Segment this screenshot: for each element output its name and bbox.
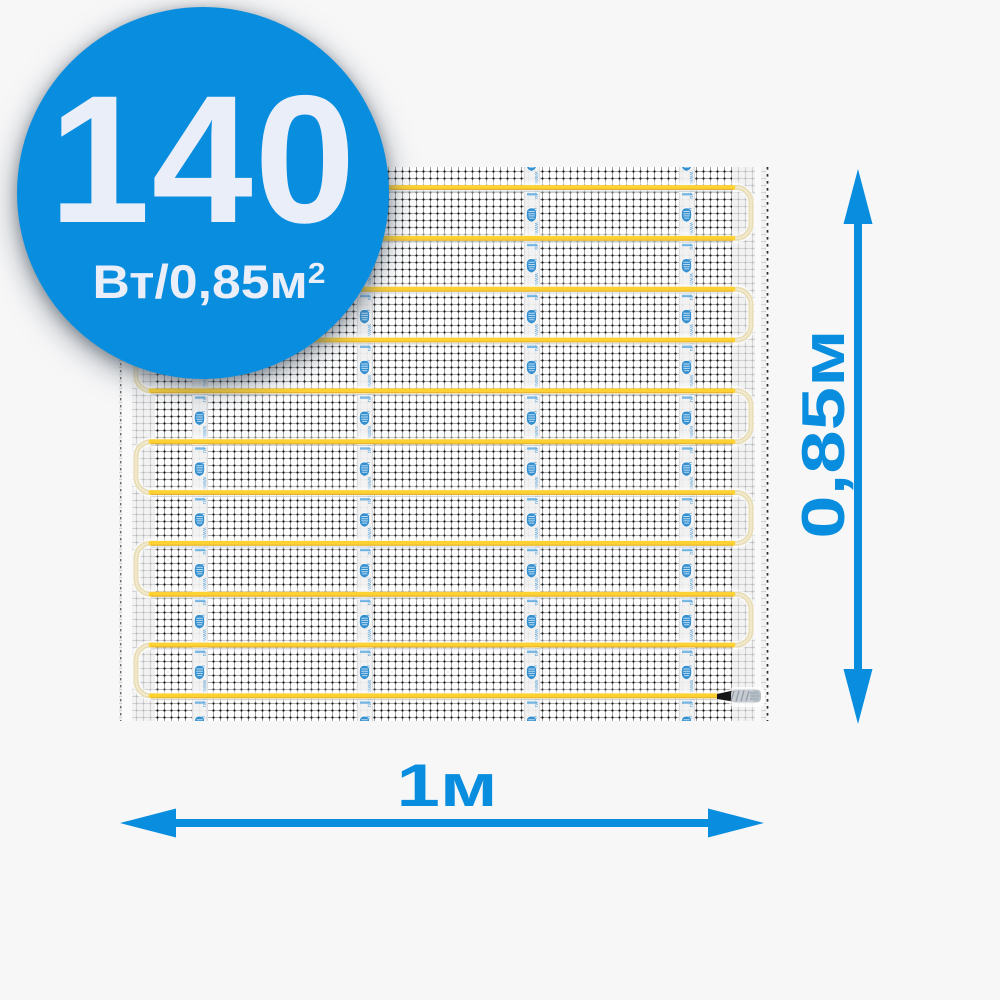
svg-text:1м: 1м [396, 752, 497, 819]
svg-text:0,85м: 0,85м [790, 329, 857, 538]
